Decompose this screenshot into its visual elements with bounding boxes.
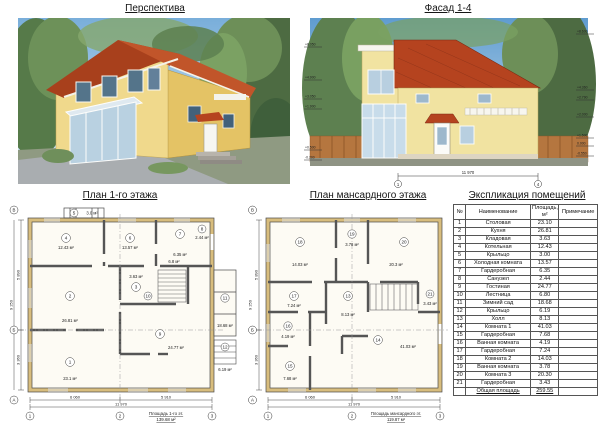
room-area: 3.0 м²: [86, 211, 98, 216]
grid-label: В: [251, 208, 254, 213]
cell-no: 14: [454, 324, 466, 332]
cell-no: 13: [454, 316, 466, 324]
table-row: 18Комната 214.03: [454, 356, 598, 364]
room-area: 26.81 м²: [62, 318, 79, 323]
room-number: 8: [201, 227, 204, 232]
cell-area: 13.57: [531, 260, 559, 268]
cell-area: 4.19: [531, 340, 559, 348]
table-row: 12Крыльцо6.19: [454, 308, 598, 316]
cell-area: 12.43: [531, 244, 559, 252]
cell-name: Комната 2: [466, 356, 531, 364]
col-no: №: [454, 205, 466, 220]
cell-name: Холл: [466, 316, 531, 324]
cell-name: Ванная комната: [466, 340, 531, 348]
facade-dimension: 11 970 1 4: [394, 170, 541, 188]
dim: 3 360: [254, 354, 259, 365]
room-number: 11: [223, 296, 228, 301]
plan1-drawing: 5 3.0 м² 4 12.43 м² 6 13.57 м² 7 6.35 м²…: [8, 204, 246, 423]
room-area: 13.57 м²: [122, 245, 139, 250]
cell-area: 2.44: [531, 276, 559, 284]
cell-no: 9: [454, 284, 466, 292]
room-number: 21: [427, 292, 433, 297]
table-row: 7Гардеробная6.35: [454, 268, 598, 276]
shrub: [42, 149, 74, 163]
window: [460, 126, 474, 144]
cell-note: [559, 348, 598, 356]
cell-name: Гостиная: [466, 284, 531, 292]
cell-no: [454, 388, 466, 396]
cell-name: Котельная: [466, 244, 531, 252]
table-row: 11Зимний сад18.68: [454, 300, 598, 308]
dim: 3 360: [16, 354, 21, 365]
elevation-value: +4.900: [305, 76, 316, 80]
room-number: 14: [375, 338, 381, 343]
cell-no: 18: [454, 356, 466, 364]
room-area: 4.19 м²: [281, 334, 295, 339]
cell-area: 7.24: [531, 348, 559, 356]
cell-note: [559, 364, 598, 372]
facade-title: Фасад 1-4: [425, 3, 472, 14]
plan2-drawing: 18 14.03 м² 19 3.78 м² 20 20.3 м² 13 8.1…: [248, 204, 454, 423]
cell-no: 17: [454, 348, 466, 356]
room-area: 7.24 м²: [287, 303, 301, 308]
cell-no: 5: [454, 252, 466, 260]
table-row: 6Холодная комната13.57: [454, 260, 598, 268]
col-area: Площадь, м²: [531, 205, 559, 220]
ground: [310, 158, 588, 166]
cell-area: 6.35: [531, 268, 559, 276]
plan1-title: План 1-го этажа: [83, 190, 158, 201]
shrub: [148, 162, 188, 174]
elevation-value: +4.360: [577, 86, 588, 90]
elevation-value: -0.550: [577, 152, 587, 156]
cell-note: [559, 372, 598, 380]
cell-note: [559, 356, 598, 364]
table-row: 2Кухня26.81: [454, 228, 598, 236]
table-row: 5Крыльцо3.00: [454, 252, 598, 260]
cell-name: Кладовая: [466, 236, 531, 244]
caption-value: 119.87 м²: [387, 417, 406, 422]
cell-no: 10: [454, 292, 466, 300]
cell-no: 12: [454, 308, 466, 316]
cell-no: 16: [454, 340, 466, 348]
grid-label: Б: [13, 328, 16, 333]
cell-area: 3.63: [531, 236, 559, 244]
room-area: 24.77 м²: [168, 345, 185, 350]
room-area: 8.13 м²: [341, 312, 355, 317]
elevation-value: +2.000: [577, 113, 588, 117]
balustrade: [465, 108, 527, 115]
axis-bubble: 1: [397, 182, 400, 187]
table-row: 3Кладовая3.63: [454, 236, 598, 244]
table-row: 17Гардеробная7.24: [454, 348, 598, 356]
room-area: 6.35 м²: [173, 252, 187, 257]
elevation-value: -0.200: [305, 156, 315, 160]
elevation-value: +3.050: [305, 95, 316, 99]
cell-note: [559, 340, 598, 348]
cell-area: 18.68: [531, 300, 559, 308]
plan1-panel: 5 3.0 м² 4 12.43 м² 6 13.57 м² 7 6.35 м²…: [8, 204, 246, 423]
table-row: 21Гардеробная3.43: [454, 380, 598, 388]
cell-no: 4: [454, 244, 466, 252]
caption-value: 139.68 м²: [156, 417, 176, 422]
room-number: 15: [287, 364, 293, 369]
cell-area: 23.10: [531, 220, 559, 228]
dim: 9 250: [248, 299, 253, 310]
total-value: 259.55: [531, 388, 559, 396]
attic-window: [478, 94, 491, 103]
table-row: 16Ванная комната4.19: [454, 340, 598, 348]
elevation-value: +1.900: [305, 105, 316, 109]
room-number: 18: [297, 240, 303, 245]
dim: 5 890: [254, 269, 259, 280]
room-area: 18.68 м²: [217, 323, 234, 328]
attic-window: [416, 94, 429, 103]
cell-area: 6.19: [531, 308, 559, 316]
dim-total: 11 970: [462, 170, 475, 175]
plan-caption: Площадь мансардного эт. 119.87 м²: [371, 411, 421, 422]
room-area: 41.03 м²: [400, 344, 417, 349]
room-number: 12: [222, 345, 228, 350]
grid-label: В: [13, 208, 16, 213]
grid-label: А: [251, 398, 254, 403]
cell-area: 3.00: [531, 252, 559, 260]
room-area: 14.03 м²: [292, 262, 309, 267]
room-number: 6: [129, 236, 132, 241]
cell-name: Гардеробная: [466, 380, 531, 388]
cell-name: Комната 3: [466, 372, 531, 380]
cell-note: [559, 228, 598, 236]
cell-note: [559, 316, 598, 324]
dim: 5 910: [391, 394, 402, 399]
cell-note: [559, 332, 598, 340]
room-number: 9: [159, 332, 162, 337]
col-name: Наименование: [466, 205, 531, 220]
door-awning: [425, 114, 459, 123]
cell-area: 26.81: [531, 228, 559, 236]
dim: 6 060: [70, 394, 81, 399]
cell-no: 15: [454, 332, 466, 340]
room-number: 19: [349, 232, 355, 237]
cell-no: 6: [454, 260, 466, 268]
cell-note: [559, 236, 598, 244]
cell-area: 6.80: [531, 292, 559, 300]
room-number: 10: [145, 294, 151, 299]
cell-no: 11: [454, 300, 466, 308]
table-total-row: Общая площадь 259.55: [454, 388, 598, 396]
cell-no: 2: [454, 228, 466, 236]
elevation-value: +8.600: [577, 30, 588, 34]
room-number: 2: [69, 294, 72, 299]
room-area: 6.19 м²: [218, 367, 232, 372]
dim: 6 060: [305, 394, 316, 399]
elevation-value: 0.000: [577, 142, 586, 146]
room-number: 17: [291, 294, 297, 299]
cell-name: Лестница: [466, 292, 531, 300]
cell-area: 7.68: [531, 332, 559, 340]
elevation-value: +8.050: [305, 43, 316, 47]
cell-name: Холодная комната: [466, 260, 531, 268]
cell-no: 20: [454, 372, 466, 380]
cell-name: Ванная комната: [466, 364, 531, 372]
room-area: 3.63 м²: [129, 274, 143, 279]
cell-area: 3.43: [531, 380, 559, 388]
cell-no: 19: [454, 364, 466, 372]
cell-name: Зимний сад: [466, 300, 531, 308]
cell-name: Кухня: [466, 228, 531, 236]
cell-no: 7: [454, 268, 466, 276]
cell-area: 14.03: [531, 356, 559, 364]
dim: 11 970: [115, 401, 128, 406]
facade-panel: +8.050 +4.900 +3.050 +1.900 +0.500 -0.20…: [298, 18, 600, 193]
room-area: 20.3 м²: [389, 262, 403, 267]
drawing-sheet: Перспектива Фасад 1-4 План 1-го этажа Пл…: [0, 0, 600, 423]
room-number: 1: [69, 360, 72, 365]
room-number: 4: [65, 236, 68, 241]
elevation-value: +0.500: [305, 146, 316, 150]
cell-note: [559, 324, 598, 332]
cell-note: [559, 252, 598, 260]
col-note: Примечание: [559, 205, 598, 220]
cell-note: [559, 244, 598, 252]
plinth: [398, 154, 538, 159]
conservatory: [362, 104, 406, 158]
cell-no: 8: [454, 276, 466, 284]
table-row: 10Лестница6.80: [454, 292, 598, 300]
table-row: 8Санузел2.44: [454, 276, 598, 284]
cell-name: Крыльцо: [466, 308, 531, 316]
grid-label: Б: [251, 328, 254, 333]
room-area: 3.43 м²: [423, 301, 437, 306]
cell-note: [559, 284, 598, 292]
table-row: 4Котельная12.43: [454, 244, 598, 252]
cell-name: Гардеробная: [466, 348, 531, 356]
table-row: 13Холл8.13: [454, 316, 598, 324]
elevation-value: +2.790: [577, 96, 588, 100]
cell-note: [559, 388, 598, 396]
grid-label: А: [13, 398, 16, 403]
cell-note: [559, 292, 598, 300]
cell-area: 8.13: [531, 316, 559, 324]
room-schedule-table: № Наименование Площадь, м² Примечание 1С…: [453, 204, 598, 396]
cell-name: Санузел: [466, 276, 531, 284]
cell-note: [559, 308, 598, 316]
room-area: 6.8 м²: [168, 259, 180, 264]
perspective-title: Перспектива: [125, 3, 185, 14]
cell-area: 24.77: [531, 284, 559, 292]
table-row: 20Комната 320.30: [454, 372, 598, 380]
facade-drawing: +8.050 +4.900 +3.050 +1.900 +0.500 -0.20…: [298, 18, 600, 188]
room-number: 3: [135, 285, 138, 290]
room-number: 13: [345, 294, 351, 299]
table-row: 1Столовая23.10: [454, 220, 598, 228]
table-header-row: № Наименование Площадь, м² Примечание: [454, 205, 598, 220]
elevation-value: +1.500: [577, 134, 588, 138]
cell-name: Гардеробная: [466, 332, 531, 340]
cell-note: [559, 276, 598, 284]
dim: 9 250: [9, 299, 14, 310]
room-area: 2.44 м²: [195, 235, 209, 240]
dim: 5 890: [16, 269, 21, 280]
cell-area: 20.30: [531, 372, 559, 380]
table-row: 19Ванная комната3.78: [454, 364, 598, 372]
room-number: 7: [179, 232, 182, 237]
cell-area: 3.78: [531, 364, 559, 372]
cell-name: Комната 1: [466, 324, 531, 332]
balcony-rail: [214, 94, 246, 100]
cell-name: Столовая: [466, 220, 531, 228]
room-area: 3.78 м²: [345, 242, 359, 247]
table-row: 9Гостиная24.77: [454, 284, 598, 292]
caption-text: Площадь 1-го эт.: [149, 411, 183, 416]
dim: 11 970: [348, 401, 361, 406]
room-area: 12.43 м²: [58, 245, 75, 250]
axis-bubble: 4: [537, 182, 540, 187]
cell-note: [559, 220, 598, 228]
room-number: 20: [401, 240, 407, 245]
cell-note: [559, 300, 598, 308]
room-area: 7.68 м²: [283, 376, 297, 381]
table-row: 15Гардеробная7.68: [454, 332, 598, 340]
cell-name: Гардеробная: [466, 268, 531, 276]
cell-note: [559, 260, 598, 268]
perspective-panel: [18, 18, 290, 189]
cell-no: 1: [454, 220, 466, 228]
table-row: 14Комната 141.03: [454, 324, 598, 332]
cell-note: [559, 268, 598, 276]
perspective-image: [18, 18, 290, 184]
total-label: Общая площадь: [466, 388, 531, 396]
plan-caption: Площадь 1-го эт. 139.68 м²: [149, 411, 183, 422]
cell-no: 3: [454, 236, 466, 244]
room-area: 23.1 м²: [63, 376, 77, 381]
cell-note: [559, 380, 598, 388]
room-number: 5: [73, 211, 76, 216]
dim: 5 910: [161, 394, 172, 399]
plan2-panel: 18 14.03 м² 19 3.78 м² 20 20.3 м² 13 8.1…: [248, 204, 454, 423]
caption-text: Площадь мансардного эт.: [371, 411, 421, 416]
cell-no: 21: [454, 380, 466, 388]
cell-name: Крыльцо: [466, 252, 531, 260]
cell-area: 41.03: [531, 324, 559, 332]
room-number: 16: [285, 324, 291, 329]
